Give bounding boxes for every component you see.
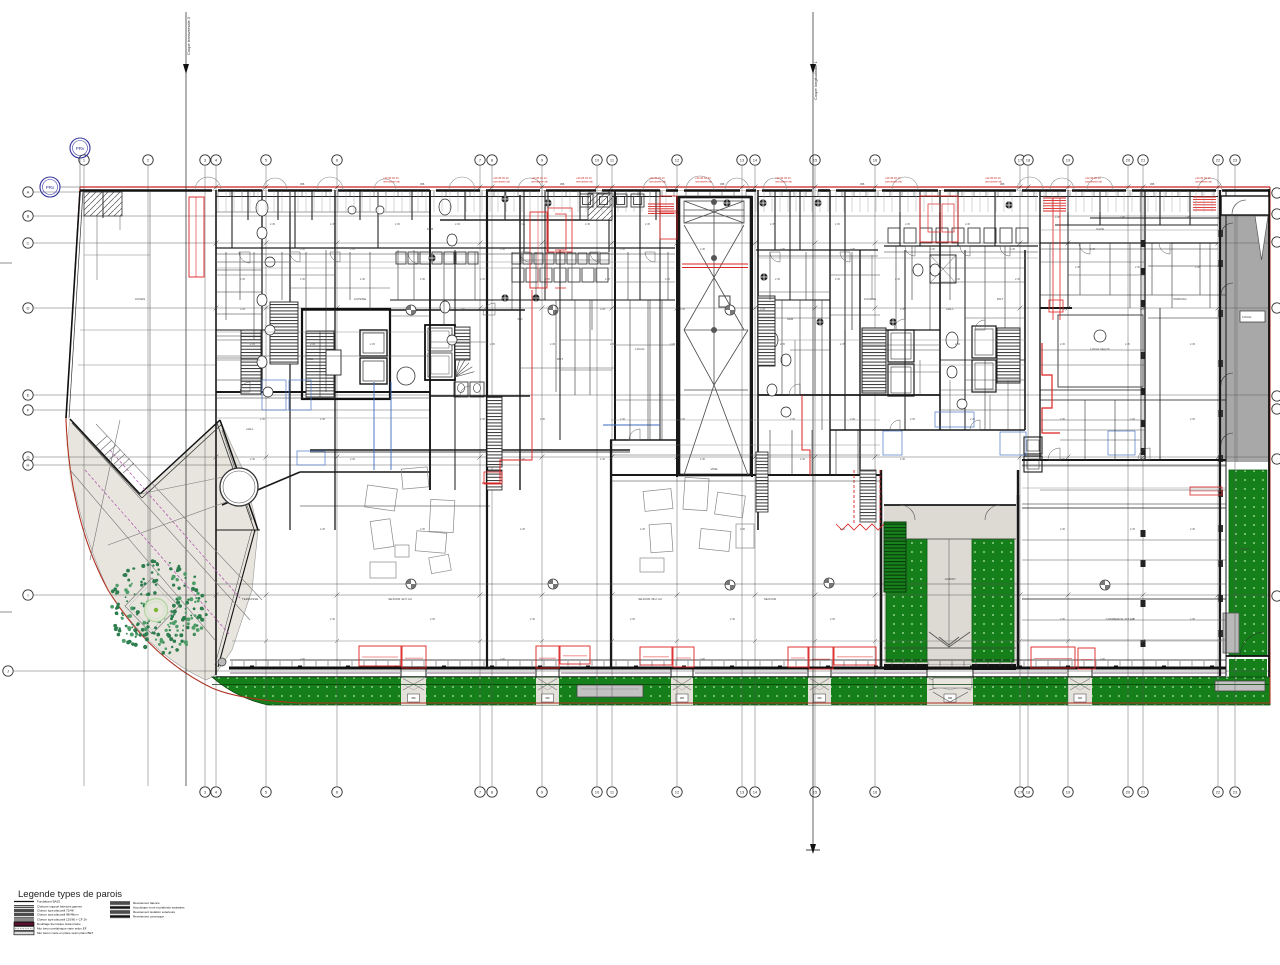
svg-text:2.45: 2.45 [250, 343, 255, 346]
svg-text:456: 456 [720, 182, 725, 186]
svg-text:Fondations BA25: Fondations BA25 [37, 900, 60, 904]
svg-text:2.45: 2.45 [240, 278, 245, 281]
svg-text:2.45: 2.45 [1195, 266, 1200, 269]
svg-text:Mur beton coule en place selon: Mur beton coule en place selon plans BET [37, 931, 94, 935]
svg-text:2.45: 2.45 [300, 658, 305, 661]
svg-text:14: 14 [753, 790, 758, 795]
svg-text:17: 17 [1018, 790, 1023, 795]
svg-text:menuiserie alu: menuiserie alu [493, 180, 510, 184]
svg-text:2.45: 2.45 [270, 223, 275, 226]
svg-text:2.45: 2.45 [500, 658, 505, 661]
svg-text:16: 16 [873, 158, 878, 163]
svg-text:2.45: 2.45 [700, 458, 705, 461]
svg-text:2.45: 2.45 [780, 248, 785, 251]
svg-text:19: 19 [1066, 790, 1071, 795]
svg-text:456: 456 [1150, 182, 1155, 186]
svg-text:2.45: 2.45 [835, 223, 840, 226]
svg-text:2.45: 2.45 [320, 528, 325, 531]
svg-text:12: 12 [675, 158, 680, 163]
svg-text:2.45: 2.45 [760, 308, 765, 311]
svg-text:2.45: 2.45 [1060, 343, 1065, 346]
svg-text:2.45: 2.45 [700, 248, 705, 251]
svg-text:+32.45 CF 1h: +32.45 CF 1h [493, 176, 509, 180]
svg-text:2.45: 2.45 [730, 618, 735, 621]
svg-text:2.45: 2.45 [835, 278, 840, 281]
svg-text:2.45: 2.45 [830, 618, 835, 621]
svg-text:2.45: 2.45 [600, 458, 605, 461]
svg-text:2.45: 2.45 [840, 528, 845, 531]
svg-text:TERRASSE: TERRASSE [242, 597, 258, 601]
svg-text:2.45: 2.45 [640, 528, 645, 531]
svg-text:2.45: 2.45 [320, 418, 325, 421]
svg-text:23: 23 [1233, 790, 1238, 795]
svg-text:2.45: 2.45 [260, 418, 265, 421]
svg-text:2.45: 2.45 [1120, 216, 1125, 219]
svg-text:menuiserie alu: menuiserie alu [531, 180, 548, 184]
svg-text:14: 14 [753, 158, 758, 163]
svg-text:menuiserie alu: menuiserie alu [695, 180, 712, 184]
svg-text:+32.45 CF 1h: +32.45 CF 1h [383, 176, 399, 180]
svg-text:WC: WC [518, 317, 524, 321]
svg-text:2.45: 2.45 [620, 418, 625, 421]
svg-text:J: J [7, 669, 9, 674]
svg-text:2.45: 2.45 [665, 278, 670, 281]
svg-text:17: 17 [1018, 158, 1023, 163]
svg-text:21: 21 [1141, 158, 1146, 163]
svg-text:SEJOUR: SEJOUR [764, 597, 777, 601]
svg-text:menuiserie alu: menuiserie alu [885, 180, 902, 184]
svg-text:2.45: 2.45 [520, 223, 525, 226]
svg-text:2.45: 2.45 [395, 223, 400, 226]
svg-text:2.45: 2.45 [1190, 343, 1195, 346]
svg-text:2.45: 2.45 [670, 343, 675, 346]
svg-text:VIDE: VIDE [710, 467, 717, 471]
svg-text:JARDIN: JARDIN [945, 577, 956, 581]
svg-text:CUISINE: CUISINE [354, 297, 366, 301]
svg-text:Mur beton prefabrique varie se: Mur beton prefabrique varie selon EF [37, 927, 87, 931]
svg-text:+32.45 CF 1h: +32.45 CF 1h [531, 176, 547, 180]
svg-text:2.45: 2.45 [1190, 528, 1195, 531]
svg-text:menuiserie alu: menuiserie alu [1085, 180, 1102, 184]
svg-text:LOCAL: LOCAL [1242, 315, 1252, 319]
svg-text:menuiserie alu: menuiserie alu [383, 180, 400, 184]
svg-text:SEJOUR 38.2 m2: SEJOUR 38.2 m2 [638, 597, 662, 601]
svg-text:2.45: 2.45 [480, 418, 485, 421]
svg-text:2.45: 2.45 [1130, 618, 1135, 621]
svg-text:2.45: 2.45 [645, 223, 650, 226]
svg-text:2.45: 2.45 [460, 308, 465, 311]
svg-text:2.45: 2.45 [900, 658, 905, 661]
svg-text:2.45: 2.45 [970, 418, 975, 421]
svg-text:+32.45 CF 1h: +32.45 CF 1h [885, 176, 901, 180]
svg-text:10: 10 [595, 158, 600, 163]
svg-text:2.45: 2.45 [500, 248, 505, 251]
svg-text:HALL: HALL [246, 427, 254, 431]
svg-text:DGT: DGT [557, 357, 564, 361]
svg-text:2.45: 2.45 [965, 223, 970, 226]
svg-text:2.45: 2.45 [545, 278, 550, 281]
svg-text:2.45: 2.45 [910, 418, 915, 421]
svg-text:ACCES: ACCES [135, 297, 145, 301]
svg-text:18: 18 [1026, 158, 1031, 163]
svg-text:2.45: 2.45 [1090, 248, 1095, 251]
svg-text:2.45: 2.45 [1130, 418, 1135, 421]
svg-text:Cloison type placostil 120/60: Cloison type placostil 120/60 + CF 2h [37, 918, 87, 922]
svg-text:SDB: SDB [787, 317, 793, 321]
svg-text:22: 22 [1216, 158, 1221, 163]
svg-text:2.45: 2.45 [1060, 528, 1065, 531]
svg-text:2.45: 2.45 [1185, 216, 1190, 219]
svg-text:2.45: 2.45 [1075, 266, 1080, 269]
svg-text:2.45: 2.45 [900, 458, 905, 461]
svg-text:2.45: 2.45 [300, 278, 305, 281]
svg-text:10: 10 [595, 790, 600, 795]
svg-text:2.45: 2.45 [930, 248, 935, 251]
svg-text:HALL: HALL [946, 307, 954, 311]
svg-text:Coupe longitudinale 1: Coupe longitudinale 1 [813, 61, 818, 100]
svg-text:2.45: 2.45 [1060, 418, 1065, 421]
svg-text:2.45: 2.45 [620, 248, 625, 251]
svg-text:2.45: 2.45 [1100, 658, 1105, 661]
svg-text:2.45: 2.45 [330, 618, 335, 621]
svg-text:15: 15 [813, 790, 818, 795]
svg-text:Revetement faience: Revetement faience [133, 901, 160, 905]
svg-text:2.45: 2.45 [1055, 216, 1060, 219]
svg-text:2.45: 2.45 [900, 308, 905, 311]
svg-text:menuiserie alu: menuiserie alu [649, 180, 666, 184]
svg-text:I: I [27, 593, 28, 598]
svg-text:PARKING: PARKING [1173, 297, 1187, 301]
svg-text:DGT: DGT [997, 297, 1004, 301]
svg-text:PRx: PRx [46, 185, 55, 190]
svg-text:2.45: 2.45 [420, 278, 425, 281]
svg-text:12: 12 [675, 790, 680, 795]
svg-text:JARDIN: JARDIN [1240, 547, 1251, 551]
svg-text:+32.45 CF 1h: +32.45 CF 1h [649, 176, 665, 180]
svg-text:456: 456 [300, 182, 305, 186]
svg-text:2.45: 2.45 [955, 278, 960, 281]
svg-text:2.45: 2.45 [790, 418, 795, 421]
svg-text:C: C [27, 241, 30, 246]
svg-text:2.45: 2.45 [520, 458, 525, 461]
svg-text:2.45: 2.45 [840, 343, 845, 346]
svg-text:23: 23 [1233, 158, 1238, 163]
svg-text:LOCAL VELOS: LOCAL VELOS [1090, 347, 1109, 351]
svg-text:22: 22 [1216, 790, 1221, 795]
svg-text:456: 456 [1000, 182, 1005, 186]
svg-text:Coupe transversale 3: Coupe transversale 3 [186, 16, 191, 55]
svg-text:Revetement isolation exterieur: Revetement isolation exterieure [133, 910, 176, 914]
svg-text:2.45: 2.45 [775, 278, 780, 281]
svg-text:2.45: 2.45 [905, 223, 910, 226]
svg-text:menuiserie alu: menuiserie alu [1195, 180, 1212, 184]
svg-text:2.45: 2.45 [430, 618, 435, 621]
svg-text:SDB: SDB [427, 227, 433, 231]
svg-text:+32.45 CF 1h: +32.45 CF 1h [775, 176, 791, 180]
svg-text:Legende types de parois: Legende types de parois [18, 889, 122, 900]
svg-text:2.45: 2.45 [630, 618, 635, 621]
svg-text:2.45: 2.45 [1060, 618, 1065, 621]
svg-text:menuiserie alu: menuiserie alu [576, 180, 593, 184]
svg-text:2.45: 2.45 [700, 658, 705, 661]
svg-text:CUISINE: CUISINE [864, 297, 876, 301]
svg-text:2.45: 2.45 [240, 308, 245, 311]
svg-text:2.45: 2.45 [605, 278, 610, 281]
svg-text:PRv: PRv [76, 146, 85, 151]
svg-text:2.45: 2.45 [330, 223, 335, 226]
svg-text:2.45: 2.45 [1140, 308, 1145, 311]
svg-text:2.45: 2.45 [310, 343, 315, 346]
svg-text:Acoustique murs et plafonds sa: Acoustique murs et plafonds sanitaires [133, 906, 185, 910]
svg-text:2.45: 2.45 [680, 308, 685, 311]
svg-text:2.45: 2.45 [360, 278, 365, 281]
svg-text:13: 13 [740, 790, 745, 795]
svg-text:E: E [27, 393, 30, 398]
svg-text:456: 456 [860, 182, 865, 186]
svg-text:2.45: 2.45 [530, 618, 535, 621]
svg-text:+32.45 CF 1h: +32.45 CF 1h [1085, 176, 1101, 180]
svg-text:Revetement ceramique: Revetement ceramique [133, 915, 164, 919]
svg-text:2.45: 2.45 [1190, 418, 1195, 421]
svg-text:2.45: 2.45 [350, 458, 355, 461]
svg-text:2.45: 2.45 [540, 418, 545, 421]
svg-text:+32.45 CF 1h: +32.45 CF 1h [985, 176, 1001, 180]
svg-text:2.45: 2.45 [370, 343, 375, 346]
svg-text:2.45: 2.45 [1140, 458, 1145, 461]
svg-text:D: D [27, 306, 30, 311]
svg-text:2.45: 2.45 [1135, 266, 1140, 269]
svg-text:2.45: 2.45 [1190, 618, 1195, 621]
svg-text:Cloison type placostil 98/48mm: Cloison type placostil 98/48mm [37, 913, 79, 917]
svg-text:20: 20 [1126, 158, 1131, 163]
svg-text:2.45: 2.45 [850, 248, 855, 251]
svg-text:2.45: 2.45 [770, 223, 775, 226]
svg-text:2.45: 2.45 [585, 223, 590, 226]
svg-text:ASC: ASC [307, 357, 314, 361]
svg-text:2.45: 2.45 [420, 528, 425, 531]
svg-text:Doublage thermique isolant lai: Doublage thermique isolant laine [37, 922, 81, 926]
svg-text:2.45: 2.45 [520, 528, 525, 531]
svg-text:2.45: 2.45 [680, 418, 685, 421]
svg-text:2.45: 2.45 [300, 248, 305, 251]
svg-text:+32.45 CF 1h: +32.45 CF 1h [695, 176, 711, 180]
svg-text:G: G [26, 455, 29, 460]
svg-text:2.45: 2.45 [250, 458, 255, 461]
svg-text:SEJOUR 42.5 m2: SEJOUR 42.5 m2 [388, 597, 412, 601]
svg-text:2.45: 2.45 [455, 223, 460, 226]
svg-text:+32.45 CF 1h: +32.45 CF 1h [576, 176, 592, 180]
svg-text:2.45: 2.45 [480, 278, 485, 281]
svg-text:menuiserie alu: menuiserie alu [775, 180, 792, 184]
svg-text:2.45: 2.45 [1125, 343, 1130, 346]
svg-text:13: 13 [740, 158, 745, 163]
svg-text:2.45: 2.45 [1130, 528, 1135, 531]
svg-text:20: 20 [1126, 790, 1131, 795]
svg-text:2.45: 2.45 [780, 343, 785, 346]
svg-text:18: 18 [1026, 790, 1031, 795]
svg-text:15: 15 [813, 158, 818, 163]
svg-text:2.45: 2.45 [1015, 278, 1020, 281]
svg-text:21: 21 [1141, 790, 1146, 795]
svg-text:2.45: 2.45 [550, 343, 555, 346]
svg-text:2.45: 2.45 [610, 343, 615, 346]
svg-text:2.45: 2.45 [955, 343, 960, 346]
svg-text:CAVE: CAVE [1096, 227, 1104, 231]
svg-text:2.45: 2.45 [490, 343, 495, 346]
svg-text:LOCAL: LOCAL [635, 347, 645, 351]
svg-text:A: A [27, 190, 30, 195]
svg-text:2.45: 2.45 [740, 528, 745, 531]
svg-text:2.45: 2.45 [850, 418, 855, 421]
svg-text:2.45: 2.45 [1060, 458, 1065, 461]
svg-text:19: 19 [1066, 158, 1071, 163]
svg-text:2.45: 2.45 [1060, 308, 1065, 311]
svg-text:2.45: 2.45 [1010, 248, 1015, 251]
svg-text:456: 456 [420, 182, 425, 186]
svg-text:456: 456 [560, 182, 565, 186]
svg-text:2.45: 2.45 [350, 248, 355, 251]
svg-text:2.45: 2.45 [800, 458, 805, 461]
svg-text:16: 16 [873, 790, 878, 795]
svg-text:2.45: 2.45 [895, 278, 900, 281]
svg-text:B: B [27, 214, 30, 219]
svg-text:+32.45 CF 1h: +32.45 CF 1h [1195, 176, 1211, 180]
svg-text:H: H [27, 463, 30, 468]
svg-text:2.45: 2.45 [600, 308, 605, 311]
